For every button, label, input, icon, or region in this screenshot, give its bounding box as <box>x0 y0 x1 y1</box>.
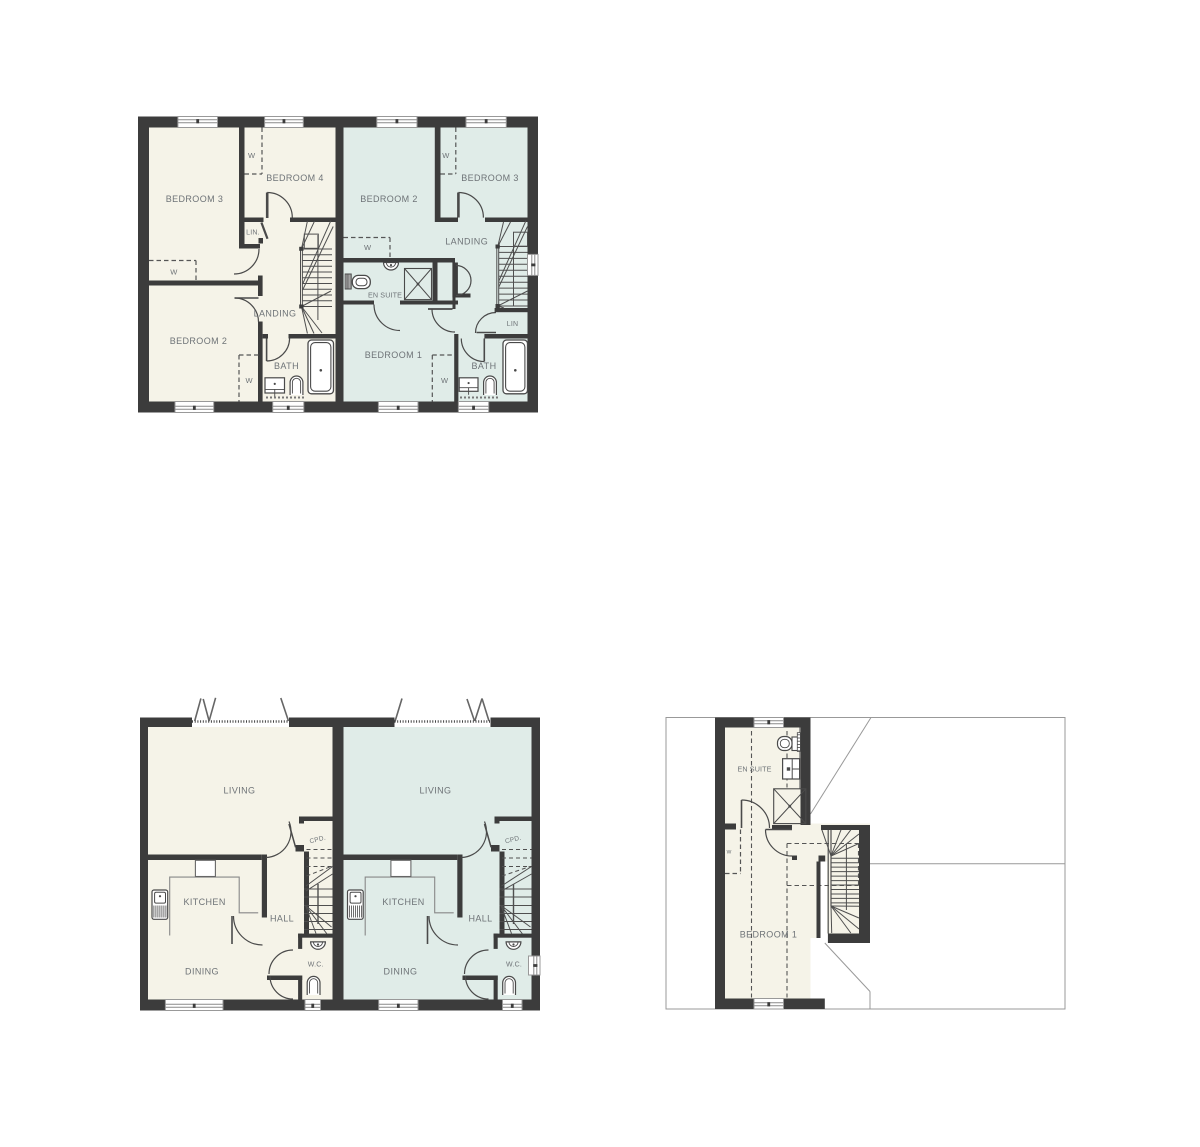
svg-text:LANDING: LANDING <box>445 237 488 247</box>
svg-text:W: W <box>170 268 178 277</box>
svg-text:DINING: DINING <box>185 967 219 977</box>
svg-text:DINING: DINING <box>384 967 418 977</box>
svg-text:W: W <box>364 243 372 252</box>
svg-text:W: W <box>245 376 253 385</box>
svg-text:KITCHEN: KITCHEN <box>183 897 225 907</box>
svg-text:LANDING: LANDING <box>254 309 297 319</box>
svg-text:BEDROOM 2: BEDROOM 2 <box>360 194 418 204</box>
svg-text:W: W <box>442 151 450 160</box>
svg-text:LIN: LIN <box>507 321 519 328</box>
svg-text:W: W <box>441 376 449 385</box>
svg-text:BATH: BATH <box>472 361 497 371</box>
svg-text:W.C.: W.C. <box>506 962 522 969</box>
svg-text:BATH: BATH <box>274 361 299 371</box>
svg-text:BEDROOM 3: BEDROOM 3 <box>166 194 224 204</box>
svg-text:W.C.: W.C. <box>308 962 324 969</box>
svg-text:BEDROOM 3: BEDROOM 3 <box>461 173 519 183</box>
svg-text:EN SUITE: EN SUITE <box>738 765 772 774</box>
svg-text:LIN.: LIN. <box>246 230 260 237</box>
svg-text:W: W <box>248 151 256 160</box>
svg-text:LIVING: LIVING <box>420 786 452 796</box>
svg-text:HALL: HALL <box>270 914 294 924</box>
svg-text:LIVING: LIVING <box>224 786 256 796</box>
svg-text:BEDROOM 2: BEDROOM 2 <box>170 336 228 346</box>
svg-text:KITCHEN: KITCHEN <box>382 897 424 907</box>
svg-text:BEDROOM 1: BEDROOM 1 <box>365 350 423 360</box>
svg-text:BEDROOM 4: BEDROOM 4 <box>266 173 324 183</box>
svg-text:BEDROOM 1: BEDROOM 1 <box>740 930 798 940</box>
svg-text:w: w <box>726 849 732 856</box>
svg-text:HALL: HALL <box>468 914 492 924</box>
svg-text:EN SUITE: EN SUITE <box>368 291 402 300</box>
